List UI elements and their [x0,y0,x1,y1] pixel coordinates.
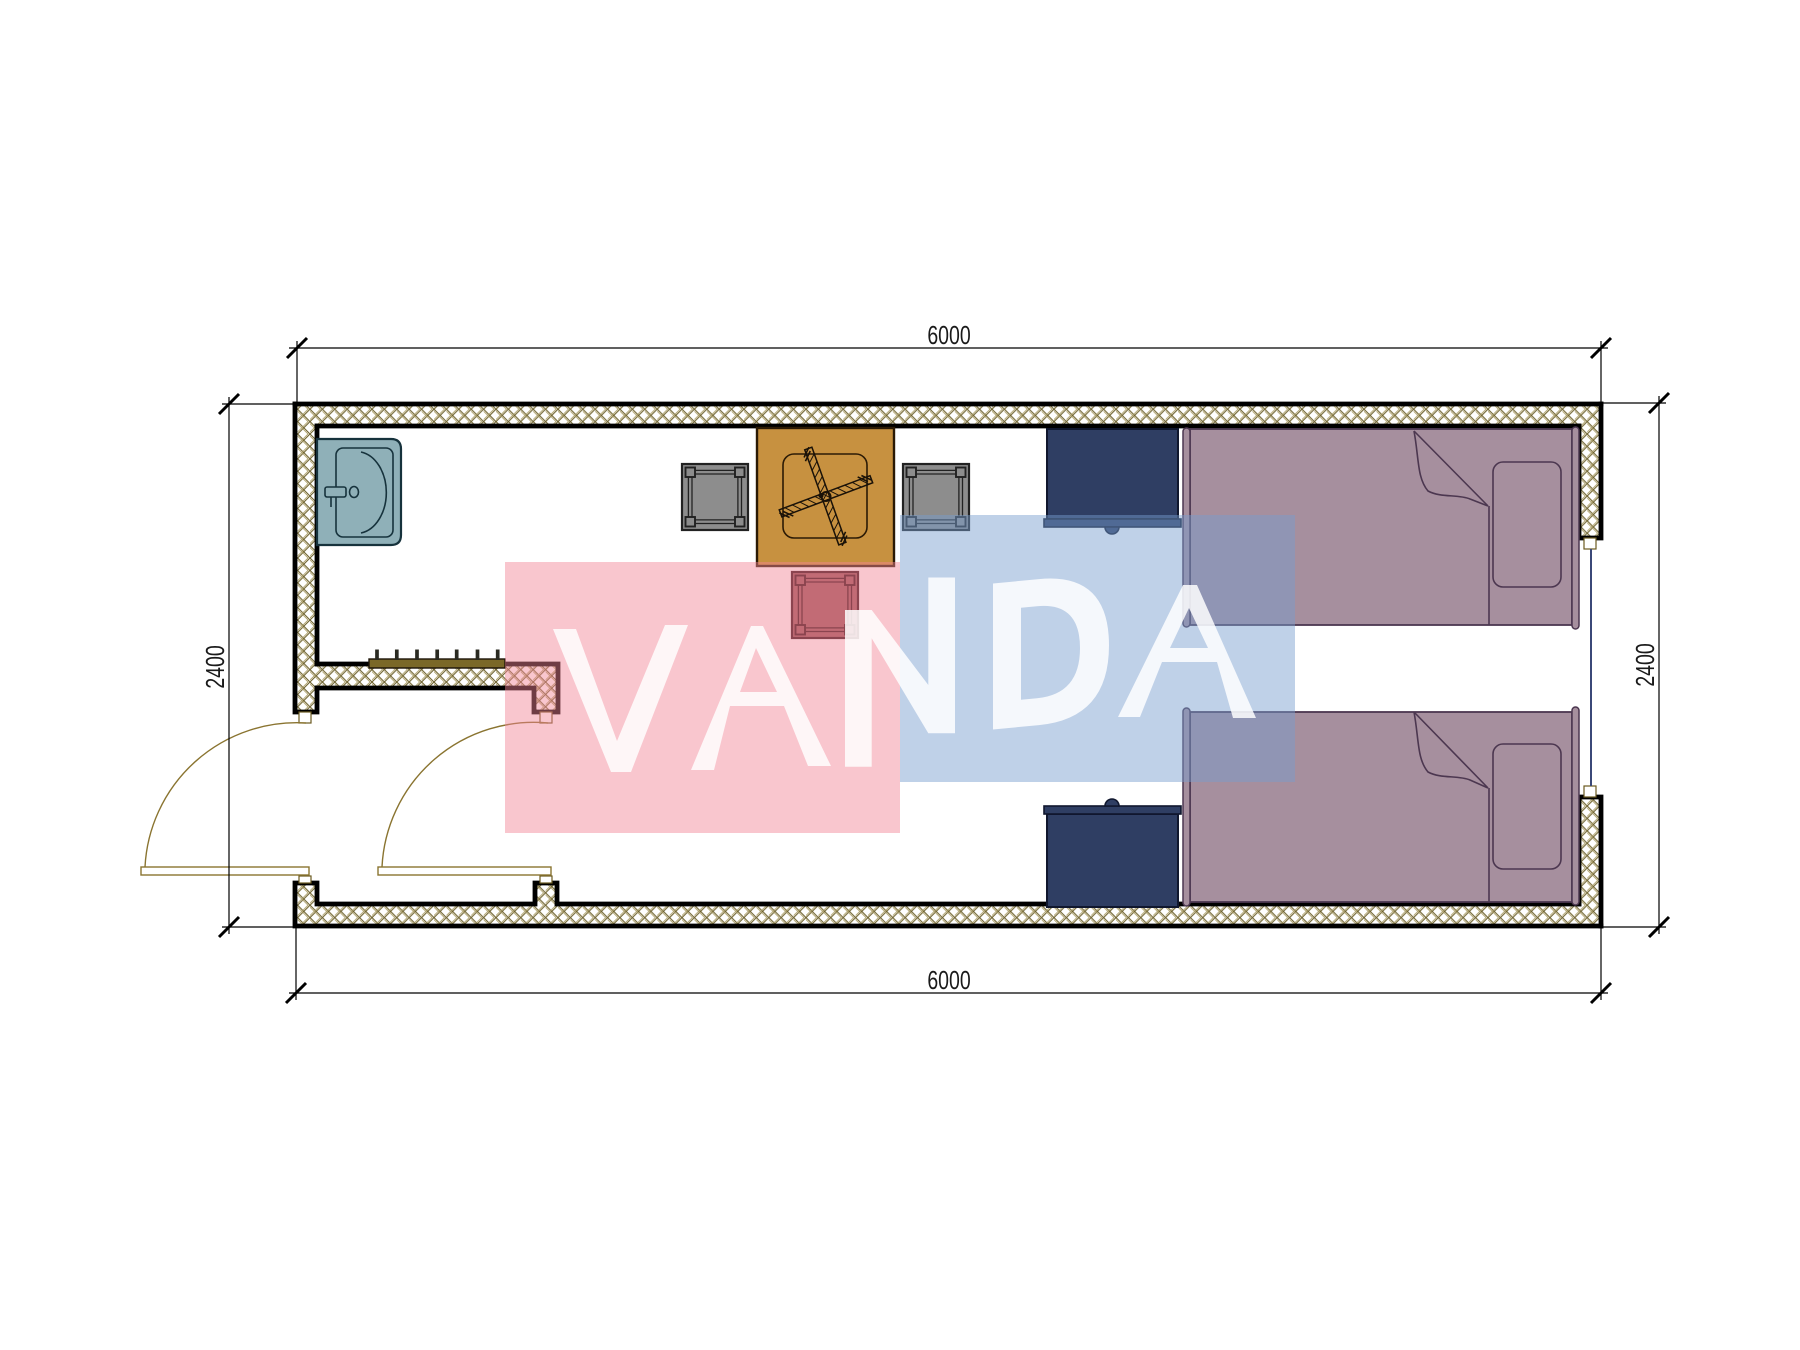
svg-text:2400: 2400 [200,645,229,688]
svg-text:2400: 2400 [1630,643,1659,686]
svg-text:6000: 6000 [927,965,970,994]
svg-text:6000: 6000 [927,320,970,349]
